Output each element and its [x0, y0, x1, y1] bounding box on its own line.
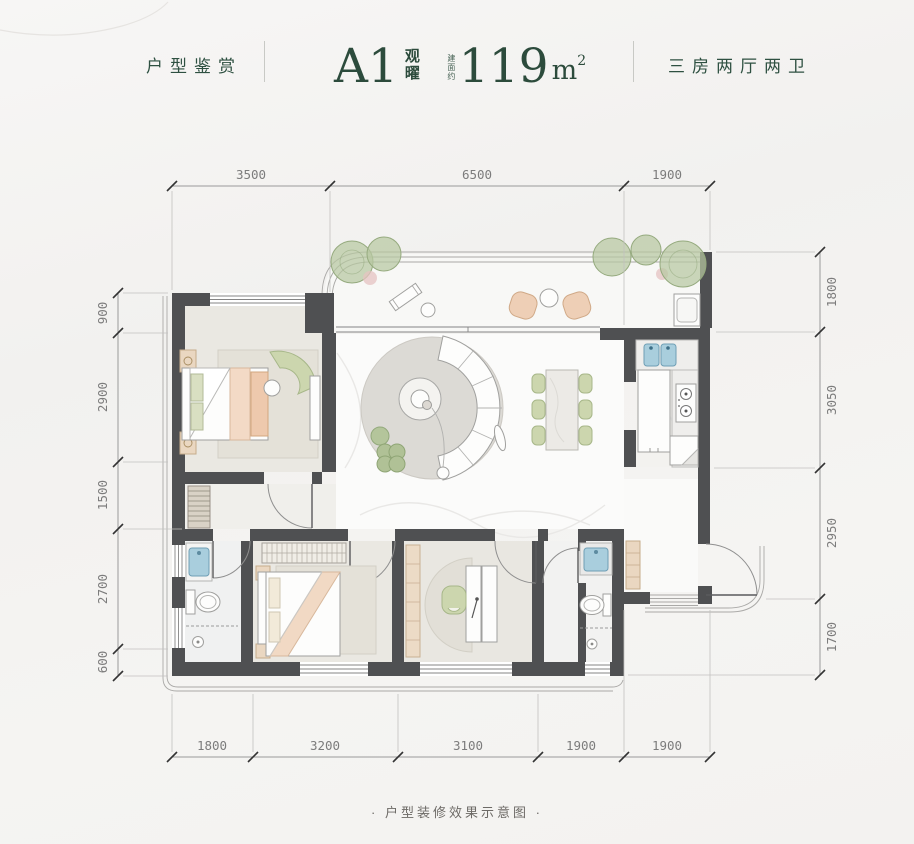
bookshelf-icon — [406, 545, 420, 657]
desk-chair-icon — [442, 586, 466, 614]
dim-label: 2950 — [824, 518, 839, 548]
floor-lamp-icon — [437, 467, 449, 479]
dim-label: 2900 — [95, 382, 110, 412]
dim-label: 1900 — [652, 167, 682, 182]
dim-label: 1800 — [824, 277, 839, 307]
bed-icon — [182, 368, 268, 440]
corridor — [188, 486, 210, 528]
tree-icon — [631, 235, 661, 265]
entry — [626, 541, 640, 589]
side-table-icon — [264, 380, 280, 396]
kitchen — [636, 340, 698, 467]
side-table-icon — [540, 289, 558, 307]
fridge-icon — [670, 436, 698, 465]
tree-icon — [660, 241, 706, 287]
floor-plan: 3500 6500 1900 900 2900 1500 2700 600 — [0, 0, 914, 844]
dim-label: 3500 — [236, 167, 266, 182]
toilet-icon — [186, 590, 220, 614]
tree-icon — [593, 238, 631, 276]
shoe-cabinet-icon — [626, 541, 640, 589]
dim-label: 3100 — [453, 738, 483, 753]
dim-label: 1800 — [197, 738, 227, 753]
decorative-branch — [0, 2, 168, 35]
stove-icon — [676, 384, 696, 422]
console-icon — [310, 376, 320, 440]
dim-label: 900 — [95, 302, 110, 325]
desk-icon — [466, 566, 497, 642]
dim-label: 6500 — [462, 167, 492, 182]
dining-table-icon — [546, 370, 578, 450]
entry-threshold — [650, 595, 698, 606]
dim-label: 1900 — [652, 738, 682, 753]
dim-label: 600 — [95, 651, 110, 674]
toilet-icon — [580, 594, 611, 616]
dim-label: 1500 — [95, 480, 110, 510]
dim-label: 1900 — [566, 738, 596, 753]
wardrobe-icon — [262, 543, 346, 563]
dim-label: 2700 — [95, 574, 110, 604]
closet-icon — [188, 486, 210, 528]
dimensions-left: 900 2900 1500 2700 600 — [95, 288, 182, 681]
coffee-table-icon — [399, 378, 441, 420]
dim-label: 3200 — [310, 738, 340, 753]
dim-label: 3050 — [824, 385, 839, 415]
island-icon — [638, 370, 670, 452]
dim-label: 1700 — [824, 622, 839, 652]
caption: · 户型装修效果示意图 · — [0, 802, 914, 821]
bed-icon — [258, 572, 340, 656]
tree-icon — [367, 237, 401, 271]
